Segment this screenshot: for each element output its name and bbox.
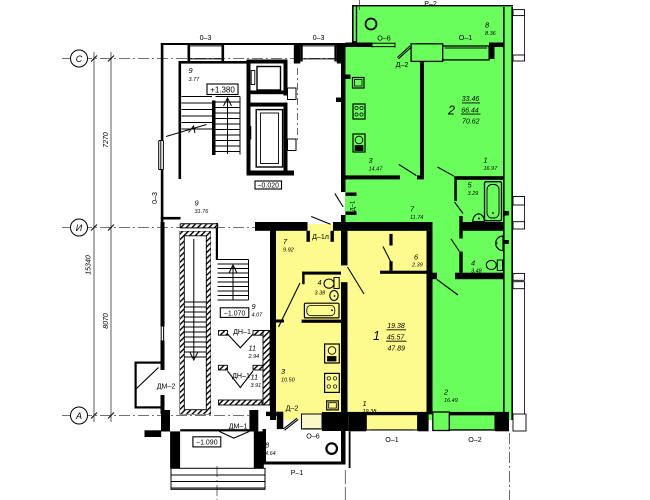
svg-text:15340: 15340: [86, 255, 93, 275]
svg-text:11: 11: [249, 344, 257, 353]
svg-text:16.97: 16.97: [484, 166, 499, 172]
svg-text:4.64: 4.64: [265, 451, 276, 457]
svg-text:19.38: 19.38: [363, 409, 378, 415]
svg-text:9: 9: [252, 302, 256, 311]
svg-text:ДМ–1: ДМ–1: [229, 423, 248, 431]
svg-text:3.91: 3.91: [251, 383, 262, 389]
svg-text:4: 4: [318, 278, 322, 287]
svg-text:4.07: 4.07: [252, 312, 264, 318]
svg-text:О–6: О–6: [306, 433, 319, 441]
svg-text:66.44: 66.44: [461, 108, 479, 115]
svg-text:1: 1: [484, 156, 488, 165]
svg-text:3.29: 3.29: [468, 191, 479, 197]
svg-text:−1.070: −1.070: [224, 310, 246, 317]
svg-text:3.48: 3.48: [471, 268, 483, 274]
svg-text:О–6: О–6: [377, 35, 390, 43]
svg-text:−0.020: −0.020: [257, 183, 279, 190]
svg-text:11: 11: [251, 373, 259, 382]
svg-text:0–3: 0–3: [200, 34, 212, 42]
svg-text:4: 4: [471, 259, 475, 268]
svg-text:45.57: 45.57: [387, 335, 406, 342]
svg-text:2.39: 2.39: [411, 263, 423, 269]
svg-text:8.36: 8.36: [485, 31, 497, 37]
svg-text:47.89: 47.89: [388, 346, 406, 353]
svg-text:7270: 7270: [103, 132, 110, 148]
svg-text:О–1: О–1: [459, 34, 472, 42]
svg-text:70.62: 70.62: [462, 119, 480, 126]
svg-text:Д–2: Д–2: [286, 405, 299, 413]
svg-text:10.50: 10.50: [281, 378, 296, 384]
svg-text:О–2: О–2: [468, 436, 481, 444]
svg-text:9: 9: [189, 66, 193, 75]
svg-text:ДМ–2: ДМ–2: [157, 383, 176, 391]
svg-text:14.47: 14.47: [369, 167, 384, 173]
svg-text:2: 2: [447, 104, 455, 118]
svg-text:И: И: [76, 223, 83, 233]
svg-text:0–3: 0–3: [151, 192, 159, 204]
svg-text:ДН–1: ДН–1: [233, 328, 251, 336]
svg-text:1: 1: [363, 399, 367, 408]
svg-text:Д–1л: Д–1л: [312, 233, 329, 241]
svg-text:9.92: 9.92: [283, 248, 294, 254]
svg-text:2.94: 2.94: [248, 354, 260, 360]
svg-text:ДН–1: ДН–1: [232, 372, 250, 380]
svg-text:−1.090: −1.090: [196, 440, 218, 447]
svg-text:Д–1: Д–1: [351, 200, 357, 211]
svg-text:2: 2: [443, 388, 448, 397]
svg-text:3.38: 3.38: [315, 291, 327, 297]
svg-text:9: 9: [195, 199, 199, 208]
svg-text:С: С: [76, 54, 83, 64]
svg-text:А: А: [75, 411, 82, 421]
svg-text:1: 1: [373, 329, 380, 343]
svg-text:О–1: О–1: [385, 436, 398, 444]
svg-text:11.74: 11.74: [410, 215, 423, 221]
svg-text:+1.380: +1.380: [210, 86, 235, 95]
svg-text:31.76: 31.76: [195, 209, 210, 215]
svg-text:Р–1: Р–1: [291, 469, 304, 477]
svg-text:8070: 8070: [103, 313, 110, 329]
svg-text:Д–2: Д–2: [396, 61, 409, 69]
svg-text:19.38: 19.38: [387, 323, 405, 330]
svg-text:Р–2: Р–2: [424, 0, 437, 8]
svg-text:3.77: 3.77: [189, 77, 201, 83]
svg-text:33.46: 33.46: [462, 96, 480, 103]
svg-text:0–3: 0–3: [313, 34, 325, 42]
svg-text:16.49: 16.49: [444, 398, 458, 404]
